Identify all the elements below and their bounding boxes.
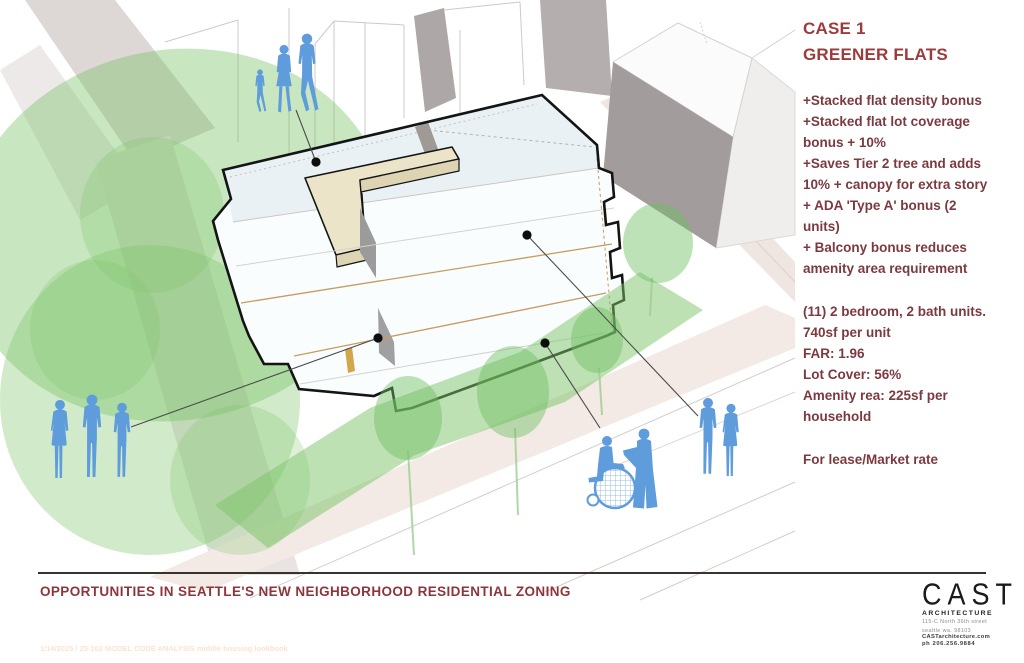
tree-icon (477, 346, 549, 438)
info-panel: CASE 1 GREENER FLATS +Stacked flat densi… (803, 16, 1017, 470)
availability-note: For lease/Market rate (803, 449, 1017, 470)
stat-size: 740sf per unit (803, 322, 1017, 343)
wheelchair-pair-silhouette-icon (588, 429, 658, 509)
footer-watermark: 1/14/2025 / 25-102 MODEL CODE ANALYSIS m… (40, 644, 288, 653)
logo-address-2: seattle wa. 98103 (922, 628, 1004, 635)
neighbor-building-right (603, 22, 795, 248)
page-title: GREENER FLATS (803, 42, 1017, 68)
tree-icon (623, 203, 693, 283)
stat-far: FAR: 1.96 (803, 343, 1017, 364)
bonus-item: + Balcony bonus reduces amenity area req… (803, 237, 1017, 279)
tree-icon (374, 376, 442, 460)
bonus-item: +Saves Tier 2 tree and adds 10% + canopy… (803, 153, 1017, 195)
logo-phone: ph 206.256.9884 (922, 641, 1004, 648)
bonus-item: + ADA 'Type A' bonus (2 units) (803, 195, 1017, 237)
bonus-item: +Stacked flat density bonus (803, 90, 1017, 111)
logo-address-1: 115-C North 36th street (922, 619, 1004, 626)
logo-website: CASTarchitecture.com (922, 634, 1004, 641)
footer-divider (38, 572, 986, 574)
callout-dot (373, 333, 382, 342)
callout-dot (540, 338, 549, 347)
bonus-list: +Stacked flat density bonus +Stacked fla… (803, 90, 1017, 279)
stats-list: (11) 2 bedroom, 2 bath units. 740sf per … (803, 301, 1017, 427)
stat-amenity: Amenity rea: 225sf per household (803, 385, 1017, 427)
logo-wordmark: CAST (922, 580, 1004, 610)
callout-dot (522, 230, 531, 239)
footer-title: OPPORTUNITIES IN SEATTLE'S NEW NEIGHBORH… (40, 584, 571, 599)
tree-icon (571, 307, 623, 373)
stat-units: (11) 2 bedroom, 2 bath units. (803, 301, 1017, 322)
slide: CASE 1 GREENER FLATS +Stacked flat densi… (0, 0, 1024, 663)
couple-silhouette-icon (700, 398, 739, 476)
callout-dot (311, 157, 320, 166)
cast-architecture-logo: CAST ARCHITECTURE 115-C North 36th stree… (922, 580, 1004, 648)
bonus-item: +Stacked flat lot coverage bonus + 10% (803, 111, 1017, 153)
case-label: CASE 1 (803, 16, 1017, 42)
stat-cover: Lot Cover: 56% (803, 364, 1017, 385)
wheelchair-wheel-icon (595, 468, 635, 508)
